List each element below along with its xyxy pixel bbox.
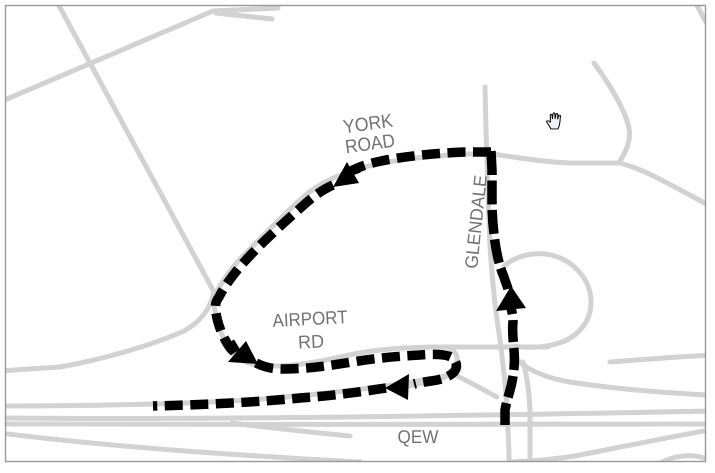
svg-text:QEW: QEW (398, 426, 439, 447)
svg-text:AIRPORT: AIRPORT (272, 306, 348, 331)
svg-text:RD: RD (297, 330, 324, 352)
